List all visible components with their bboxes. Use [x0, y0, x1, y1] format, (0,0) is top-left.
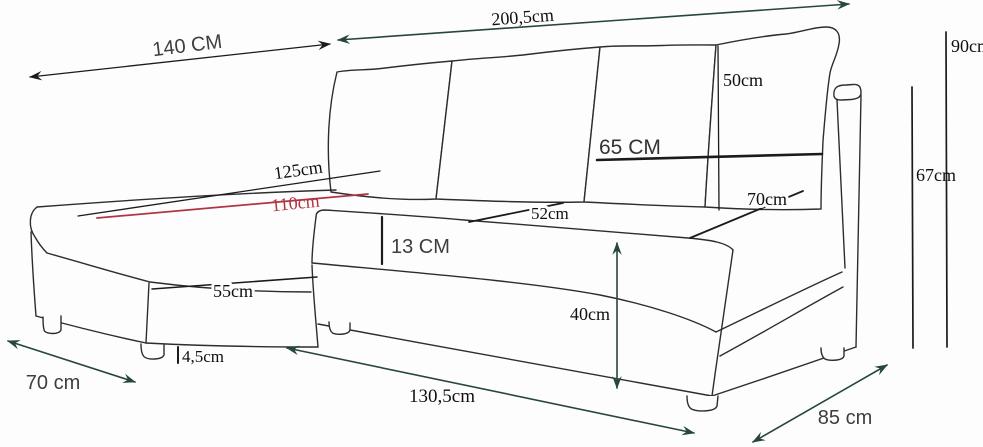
dim-125cm-label: 125cm	[273, 157, 324, 184]
dim-40cm: 40cm	[570, 243, 617, 388]
back-pillow-4	[705, 27, 839, 210]
back-pillow-3	[584, 45, 716, 207]
dim-200-5cm-arrow	[338, 4, 849, 40]
dim-125cm-line	[78, 171, 380, 216]
dim-200-5cm: 200,5cm	[338, 4, 849, 40]
sofa-dimension-diagram: 140 CM 200,5cm 90cm 67cm 50cm 65 CM	[0, 0, 983, 447]
armrest-outer-edge	[856, 95, 861, 347]
dim-70cm-seat-label: 70cm	[747, 189, 787, 209]
dim-13cm: 13 CM	[382, 217, 450, 264]
base-bottom-edge	[318, 324, 712, 396]
diagram-canvas: 140 CM 200,5cm 90cm 67cm 50cm 65 CM	[0, 0, 983, 447]
seat-front-edge	[316, 210, 733, 250]
seat-front-left-corner-edge	[312, 217, 316, 263]
dim-67cm: 67cm	[912, 87, 956, 348]
dim-130-5cm: 130,5cm	[287, 348, 694, 433]
dim-55cm-label: 55cm	[213, 281, 253, 301]
chaise-side-bottom-edge	[146, 343, 318, 347]
chaise-front-edge	[47, 253, 311, 292]
dim-67cm-label: 67cm	[916, 165, 956, 185]
dim-90cm-line	[946, 32, 947, 347]
dim-85cm-label: 85 cm	[818, 407, 872, 429]
dim-110cm-label: 110cm	[270, 191, 320, 216]
dim-90cm: 90cm	[946, 32, 983, 347]
dim-130-5cm-label: 130,5cm	[409, 386, 475, 407]
front-right-corner-edge	[712, 250, 733, 396]
dim-52cm: 52cm	[469, 203, 569, 223]
back-pillow-1	[328, 61, 452, 200]
dim-67cm-line	[912, 87, 913, 348]
chaise-corner-soft-edge	[146, 283, 149, 343]
back-pillow-2	[436, 47, 600, 202]
sofa-leg	[141, 344, 164, 359]
dim-40cm-label: 40cm	[570, 304, 610, 324]
dim-70cm-width-label: 70 cm	[26, 372, 80, 394]
dim-85cm-arrow	[753, 365, 887, 442]
cushion-seam	[312, 263, 716, 332]
armrest-top	[834, 84, 861, 100]
chaise-left-corner	[30, 207, 47, 253]
dim-140cm: 140 CM	[30, 31, 330, 77]
dim-13cm-label: 13 CM	[391, 236, 450, 258]
dim-55cm: 55cm	[152, 277, 317, 301]
chaise-left-face-edge	[31, 232, 36, 316]
dim-4-5cm: 4,5cm	[178, 347, 224, 366]
dim-52cm-label: 52cm	[531, 204, 569, 223]
sofa-leg	[43, 316, 61, 334]
sofa-leg	[821, 348, 844, 360]
dim-4-5cm-label: 4,5cm	[182, 347, 224, 366]
dim-50cm-label: 50cm	[723, 70, 763, 90]
dim-70cm-width: 70 cm	[8, 341, 135, 394]
dim-65cm-label: 65 CM	[599, 136, 661, 159]
dim-85cm: 85 cm	[753, 365, 887, 442]
sofa-leg	[329, 322, 350, 334]
dim-130-5cm-arrow	[287, 348, 694, 433]
dim-90cm-label: 90cm	[951, 36, 983, 56]
sofa-leg	[687, 396, 718, 411]
armrest-inner-edge	[837, 100, 845, 268]
dim-110cm-line	[97, 194, 368, 218]
